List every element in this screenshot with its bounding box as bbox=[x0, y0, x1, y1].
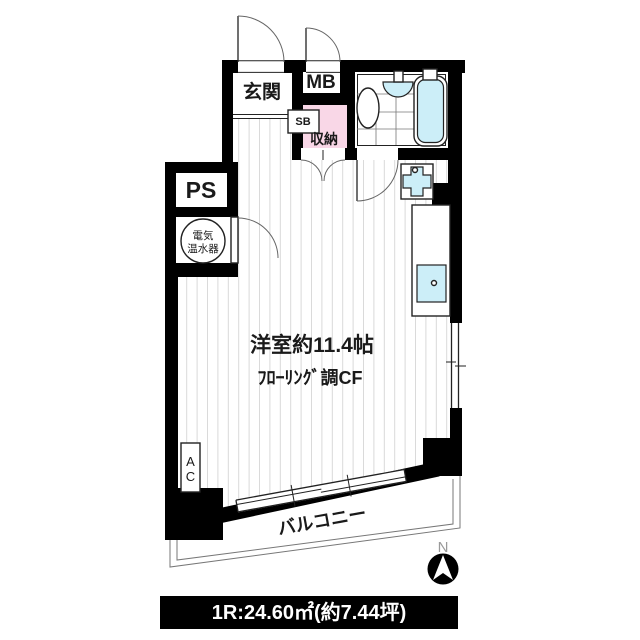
washing-machine-area bbox=[401, 164, 433, 199]
water-heater-door-leaf bbox=[231, 217, 238, 263]
kitchen-counter bbox=[412, 205, 450, 316]
main-room-floor-label: ﾌﾛｰﾘﾝｸﾞ調CF bbox=[258, 367, 363, 388]
north-label: N bbox=[438, 539, 449, 556]
bathroom-door-opening bbox=[357, 148, 398, 160]
main-room-size-label: 洋室約11.4帖 bbox=[250, 333, 374, 357]
water-heater-label-2: 温水器 bbox=[187, 243, 219, 255]
floor-plan: N 1R:24.60㎡(約7.44坪) 玄関 MB SB 収納 PS 電気 温水… bbox=[0, 0, 640, 640]
ac-label-2: C bbox=[186, 469, 195, 484]
sink-drain bbox=[432, 281, 437, 286]
ac-label-1: A bbox=[186, 454, 195, 469]
wall-right-upper bbox=[448, 160, 462, 183]
wall-right-protrusion bbox=[432, 183, 462, 205]
faucet-dot bbox=[413, 168, 418, 173]
wall-right-lower bbox=[450, 408, 462, 440]
water-heater-label-1: 電気 bbox=[193, 229, 214, 242]
pipe-space-label: PS bbox=[186, 177, 217, 203]
bathtub-faucet bbox=[423, 69, 437, 80]
bathtub-inner bbox=[418, 80, 444, 143]
basin-faucet bbox=[394, 71, 403, 82]
wall-left bbox=[165, 277, 178, 492]
storage-label: 収納 bbox=[310, 131, 338, 147]
wall-entrance-left bbox=[222, 60, 233, 175]
shoe-box-label: SB bbox=[295, 116, 310, 128]
unit-size-label: 1R:24.60㎡(約7.44坪) bbox=[212, 600, 407, 624]
wall-right-kitchen bbox=[450, 205, 462, 323]
toilet bbox=[357, 88, 379, 128]
meter-box-label: MB bbox=[306, 72, 336, 93]
entrance-label: 玄関 bbox=[243, 80, 281, 103]
